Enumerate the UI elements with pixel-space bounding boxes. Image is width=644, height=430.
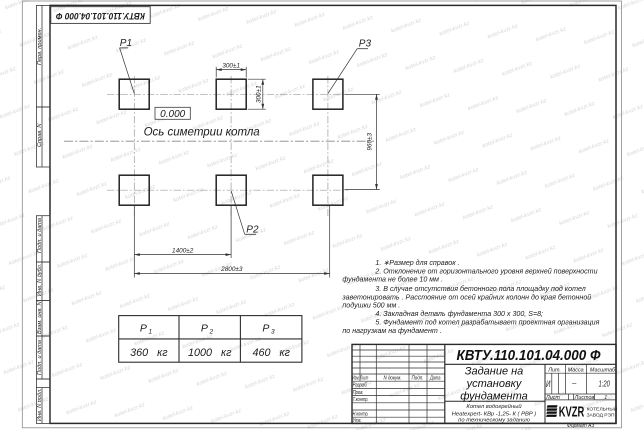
svg-text:подушки 500 мм .: подушки 500 мм . xyxy=(342,302,400,310)
svg-text:1000 кг: 1000 кг xyxy=(188,347,232,359)
svg-text:КВТУ.110.101.04.000 Ф: КВТУ.110.101.04.000 Ф xyxy=(457,347,601,364)
svg-text:Утв.: Утв. xyxy=(353,418,362,424)
svg-text:5. Фундамент под котел раз: 5. Фундамент под котел разрабатывает про… xyxy=(375,319,599,327)
svg-text:фундамента: фундамента xyxy=(460,390,528,402)
svg-text:1: 1 xyxy=(604,395,607,401)
svg-text:0.000: 0.000 xyxy=(160,109,185,120)
svg-text:заветонировать . Расстояние: заветонировать . Расстояние от осей край… xyxy=(341,294,591,302)
svg-text:Ось симетрии котла: Ось симетрии котла xyxy=(144,126,260,138)
svg-text:4. Закладная деталь фундаме: 4. Закладная деталь фундамента 300 х 300… xyxy=(375,310,543,318)
svg-text:P2: P2 xyxy=(246,225,259,236)
svg-text:P3: P3 xyxy=(359,38,372,49)
svg-text:Разраб.: Разраб. xyxy=(353,383,368,389)
svg-text:Масштаб: Масштаб xyxy=(590,367,616,373)
svg-text:по нагрузкам на фундамент .: по нагрузкам на фундамент . xyxy=(342,327,441,335)
svg-text:Задание на: Задание на xyxy=(465,366,524,378)
svg-text:Пров.: Пров. xyxy=(353,390,364,396)
svg-text:Н.контр.: Н.контр. xyxy=(353,411,369,417)
svg-text:Перв. примен.: Перв. примен. xyxy=(37,28,43,65)
svg-text:по техническому заданию: по техническому заданию xyxy=(458,418,530,424)
svg-text:Дата: Дата xyxy=(429,375,440,381)
svg-text:ЗАВОД РЭП: ЗАВОД РЭП xyxy=(587,413,615,419)
svg-text:3. В случае отсутствия бет: 3. В случае отсутствия бетонного пола пл… xyxy=(375,285,585,293)
svg-text:1. ∗Размер для справок .: 1. ∗Размер для справок . xyxy=(375,259,459,267)
svg-text:KVZR: KVZR xyxy=(559,405,585,421)
svg-text:Подп. и дата: Подп. и дата xyxy=(37,340,43,375)
svg-text:300±1: 300±1 xyxy=(222,62,240,69)
svg-text:Инв. N дубл.: Инв. N дубл. xyxy=(37,264,43,296)
svg-text:Справ. N: Справ. N xyxy=(37,123,43,147)
svg-text:360 кг: 360 кг xyxy=(130,347,168,359)
svg-text:Котел водогрейный: Котел водогрейный xyxy=(466,403,522,410)
svg-text:Изм.: Изм. xyxy=(352,375,359,381)
svg-text:Heatexpert- КВр -1,25- К ( РВР: Heatexpert- КВр -1,25- К ( РВР ) xyxy=(452,411,537,417)
svg-text:Взам. инв. N: Взам. инв. N xyxy=(37,300,43,334)
svg-text:Масса: Масса xyxy=(568,367,584,373)
svg-text:960±3: 960±3 xyxy=(367,132,374,150)
svg-text:Лист: Лист xyxy=(359,375,368,381)
svg-text:установку: установку xyxy=(466,378,523,390)
svg-text:И: И xyxy=(546,379,551,390)
svg-text:2800±3: 2800±3 xyxy=(220,266,243,273)
svg-text:КВТУ.110.101.04.000 Ф: КВТУ.110.101.04.000 Ф xyxy=(56,11,145,21)
svg-text:Листов: Листов xyxy=(574,395,595,401)
svg-text:Т.контр.: Т.контр. xyxy=(353,397,369,403)
svg-text:N докум.: N докум. xyxy=(384,375,402,381)
svg-text:2. Отклонение от горизонтал: 2. Отклонение от горизонтального уровня … xyxy=(374,267,597,275)
svg-text:1400±2: 1400±2 xyxy=(172,247,194,254)
svg-text:Лит.: Лит. xyxy=(547,367,561,373)
svg-text:фундамента не более 10: фундамента не более 10 мм . xyxy=(342,276,443,284)
svg-text:P1: P1 xyxy=(120,38,132,49)
svg-text:460 кг: 460 кг xyxy=(252,347,290,359)
svg-text:–: – xyxy=(571,378,577,387)
svg-text:Инв. N подл.: Инв. N подл. xyxy=(37,388,43,421)
svg-text:Подп. и дата: Подп. и дата xyxy=(37,218,43,253)
svg-text:300±1: 300±1 xyxy=(255,85,262,103)
svg-text:1:20: 1:20 xyxy=(598,379,610,389)
svg-text:Подп.: Подп. xyxy=(412,375,424,381)
svg-text:Лист: Лист xyxy=(545,395,560,401)
svg-text:Формат А3: Формат А3 xyxy=(567,423,595,429)
